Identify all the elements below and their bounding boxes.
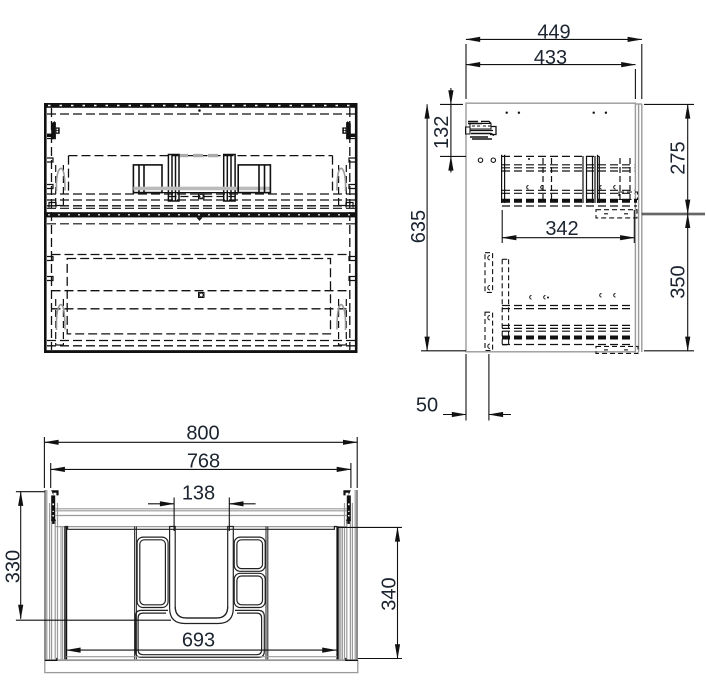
svg-text:340: 340 <box>378 577 400 610</box>
svg-text:693: 693 <box>182 630 215 652</box>
svg-text:132: 132 <box>431 116 453 149</box>
svg-text:800: 800 <box>186 423 219 445</box>
svg-text:330: 330 <box>3 550 25 583</box>
svg-text:138: 138 <box>182 483 215 505</box>
svg-text:50: 50 <box>416 395 438 417</box>
svg-text:635: 635 <box>408 210 430 243</box>
svg-text:275: 275 <box>668 141 690 174</box>
svg-text:433: 433 <box>534 47 567 69</box>
svg-text:768: 768 <box>187 451 220 473</box>
svg-text:350: 350 <box>668 265 690 298</box>
svg-text:342: 342 <box>545 218 578 240</box>
svg-text:449: 449 <box>537 22 570 44</box>
